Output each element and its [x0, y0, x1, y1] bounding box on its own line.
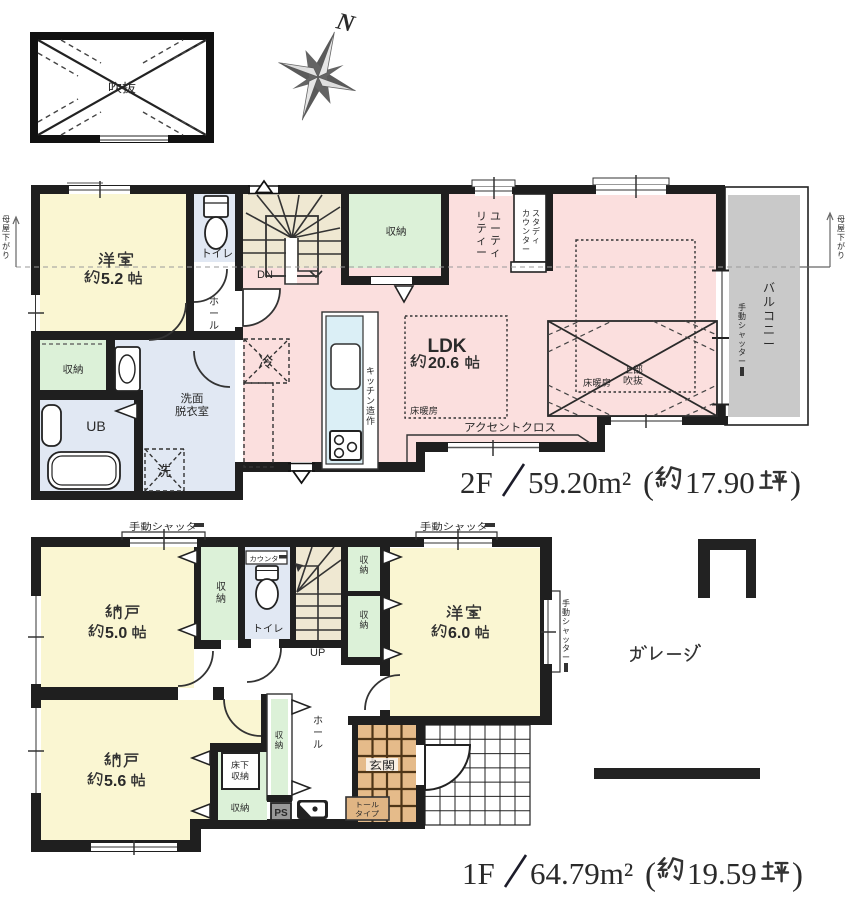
- svg-text:洗: 洗: [157, 463, 171, 479]
- svg-text:ー: ー: [313, 728, 323, 739]
- svg-text:コ: コ: [763, 309, 775, 323]
- svg-text:トール: トール: [355, 802, 379, 809]
- svg-text:シ: シ: [562, 617, 570, 626]
- svg-text:動: 動: [738, 312, 746, 321]
- svg-text:ル: ル: [763, 295, 775, 309]
- svg-text:ー: ー: [763, 337, 775, 351]
- svg-text:床下: 床下: [231, 760, 250, 770]
- svg-text:収納: 収納: [231, 802, 250, 813]
- svg-text:ッ: ッ: [366, 376, 375, 386]
- svg-text:トイレ: トイレ: [201, 248, 233, 260]
- svg-text:納: 納: [275, 740, 284, 750]
- svg-text:2F: 2F: [460, 465, 493, 500]
- svg-text:ャ: ャ: [738, 330, 746, 339]
- svg-text:DN: DN: [257, 269, 273, 281]
- svg-text:UB: UB: [86, 418, 105, 434]
- svg-text:PS: PS: [274, 808, 288, 819]
- svg-text:下: 下: [2, 233, 10, 242]
- svg-text:5.0: 5.0: [105, 625, 127, 642]
- svg-text:床暖房: 床暖房: [583, 377, 611, 388]
- svg-text:デ: デ: [532, 226, 540, 236]
- svg-text:テ: テ: [476, 223, 487, 235]
- svg-text:1F: 1F: [462, 856, 495, 891]
- svg-text:吹抜: 吹抜: [108, 81, 136, 95]
- svg-text:リ: リ: [476, 211, 487, 223]
- svg-text:ー: ー: [562, 653, 570, 662]
- svg-text:屋: 屋: [837, 224, 845, 233]
- svg-text:ー: ー: [738, 357, 746, 366]
- svg-text:ー: ー: [522, 245, 530, 254]
- svg-text:母: 母: [2, 215, 10, 224]
- svg-text:収納: 収納: [386, 225, 407, 238]
- svg-text:吹抜: 吹抜: [623, 375, 644, 387]
- svg-text:(: (: [643, 466, 654, 502]
- svg-text:ス: ス: [532, 209, 540, 218]
- svg-text:ー: ー: [490, 223, 501, 235]
- svg-text:り: り: [2, 251, 10, 260]
- svg-text:UP: UP: [310, 647, 325, 659]
- svg-text:手: 手: [738, 302, 746, 312]
- svg-text:収: 収: [275, 730, 284, 740]
- svg-text:チ: チ: [366, 386, 375, 396]
- svg-text:ユ: ユ: [490, 211, 501, 223]
- svg-text:バ: バ: [763, 281, 775, 295]
- svg-text:納: 納: [359, 619, 368, 630]
- svg-text:ッ: ッ: [562, 635, 570, 644]
- svg-text:手動シャッタ: 手動シャッタ: [129, 521, 197, 533]
- svg-text:タイプ: タイプ: [355, 809, 379, 818]
- svg-text:収納: 収納: [231, 771, 249, 781]
- svg-text:ウ: ウ: [522, 218, 530, 227]
- svg-text:造: 造: [366, 405, 375, 416]
- svg-text:19.59: 19.59: [687, 856, 757, 891]
- svg-text:ィ: ィ: [490, 247, 501, 259]
- svg-text:ー: ー: [476, 247, 487, 259]
- svg-text:収納: 収納: [63, 363, 84, 376]
- svg-text:タ: タ: [522, 236, 530, 245]
- svg-text:下: 下: [837, 233, 845, 242]
- svg-text:洗面: 洗面: [181, 392, 204, 405]
- svg-text:ニ: ニ: [763, 323, 775, 337]
- svg-text:トイレ: トイレ: [253, 624, 284, 635]
- svg-text:5.6: 5.6: [104, 773, 126, 790]
- svg-text:シ: シ: [738, 321, 746, 330]
- svg-text:手動シャッタ: 手動シャッタ: [420, 521, 488, 533]
- svg-text:冷: 冷: [258, 354, 273, 371]
- svg-text:(: (: [645, 857, 656, 893]
- svg-text:ッ: ッ: [738, 339, 746, 348]
- svg-text:ィ: ィ: [476, 235, 487, 247]
- svg-text:ー: ー: [209, 309, 219, 320]
- svg-text:59.20m²: 59.20m²: [528, 465, 631, 500]
- svg-text:ル: ル: [209, 321, 219, 332]
- svg-text:作: 作: [366, 415, 375, 426]
- svg-text:タ: タ: [562, 644, 570, 653]
- svg-text:キ: キ: [366, 366, 375, 376]
- svg-text:カ: カ: [522, 209, 530, 218]
- svg-text:6.0: 6.0: [448, 625, 470, 642]
- svg-text:が: が: [837, 241, 845, 251]
- svg-text:動: 動: [562, 608, 570, 617]
- svg-text:ル: ル: [313, 740, 323, 751]
- svg-text:アクセントクロス: アクセントクロス: [464, 421, 556, 434]
- svg-text:ャ: ャ: [562, 626, 570, 635]
- svg-text:屋: 屋: [2, 224, 10, 233]
- svg-text:LDK: LDK: [427, 336, 466, 357]
- svg-text:5.2: 5.2: [101, 271, 123, 288]
- svg-text:母: 母: [837, 215, 845, 224]
- svg-text:玄関: 玄関: [369, 758, 395, 772]
- svg-text:): ): [792, 857, 803, 893]
- svg-text:ホ: ホ: [313, 715, 323, 727]
- svg-text:床暖房: 床暖房: [410, 405, 438, 416]
- svg-text:64.79m²: 64.79m²: [530, 856, 633, 891]
- svg-text:ィ: ィ: [532, 236, 540, 245]
- svg-text:テ: テ: [490, 235, 501, 247]
- svg-text:納: 納: [216, 592, 226, 605]
- svg-text:タ: タ: [532, 218, 540, 227]
- svg-text:納: 納: [359, 564, 368, 575]
- svg-text:): ): [790, 466, 801, 502]
- svg-text:収: 収: [359, 554, 368, 565]
- svg-text:カウンタ: カウンタ: [250, 554, 279, 563]
- svg-text:ン: ン: [366, 396, 375, 406]
- svg-text:20.6: 20.6: [428, 355, 459, 372]
- svg-text:ホ: ホ: [209, 296, 219, 308]
- svg-text:脱衣室: 脱衣室: [175, 404, 209, 418]
- svg-text:り: り: [837, 251, 845, 260]
- svg-text:手: 手: [562, 598, 570, 608]
- svg-text:17.90: 17.90: [685, 465, 755, 500]
- svg-text:タ: タ: [738, 348, 746, 357]
- svg-text:収: 収: [216, 581, 226, 593]
- svg-text:が: が: [2, 241, 10, 251]
- svg-text:収: 収: [359, 609, 368, 620]
- svg-text:ン: ン: [522, 227, 530, 236]
- svg-text:上部: 上部: [623, 364, 643, 376]
